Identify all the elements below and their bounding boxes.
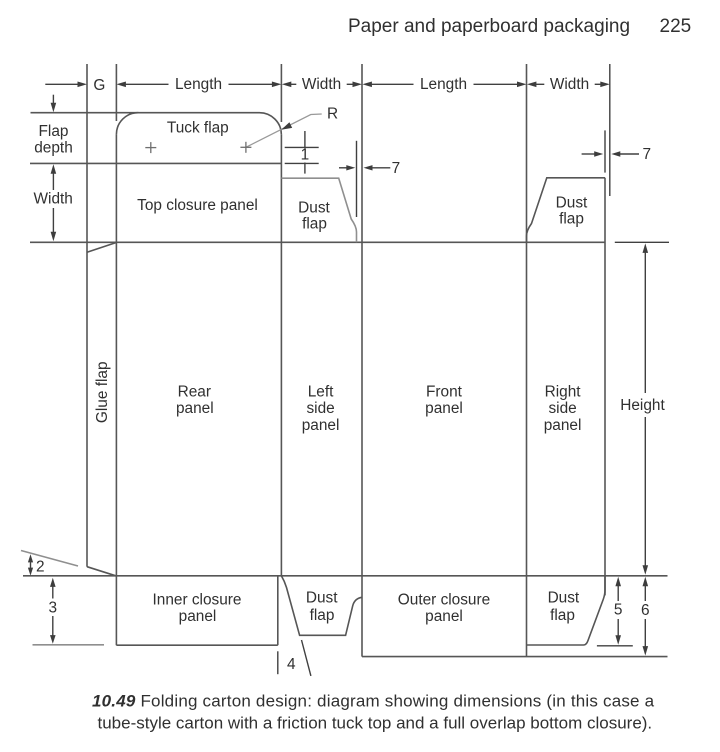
svg-text:Outer closure: Outer closure <box>398 592 490 609</box>
svg-text:Rear: Rear <box>178 384 211 401</box>
svg-text:Flap: Flap <box>39 123 69 140</box>
svg-text:side: side <box>306 400 334 417</box>
svg-text:panel: panel <box>425 400 463 417</box>
svg-text:Left: Left <box>308 384 334 401</box>
svg-text:Paper and paperboard packaging: Paper and paperboard packaging <box>348 16 630 37</box>
svg-text:flap: flap <box>302 215 327 232</box>
svg-text:Width: Width <box>302 76 341 93</box>
svg-text:depth: depth <box>34 140 73 157</box>
svg-text:Dust: Dust <box>306 590 338 607</box>
svg-text:panel: panel <box>302 417 340 434</box>
svg-text:panel: panel <box>179 608 217 625</box>
svg-text:Glue flap: Glue flap <box>94 361 111 423</box>
svg-text:1: 1 <box>301 146 310 163</box>
svg-text:Width: Width <box>34 191 73 208</box>
svg-text:Inner closure: Inner closure <box>153 592 242 609</box>
svg-text:7: 7 <box>392 160 401 177</box>
svg-text:Tuck flap: Tuck flap <box>167 120 229 137</box>
svg-text:Top closure panel: Top closure panel <box>137 197 258 214</box>
svg-text:4: 4 <box>287 656 296 673</box>
svg-text:panel: panel <box>425 608 463 625</box>
svg-text:panel: panel <box>176 400 214 417</box>
svg-text:Length: Length <box>420 76 467 93</box>
svg-text:G: G <box>93 77 105 94</box>
svg-text:panel: panel <box>544 417 582 434</box>
svg-text:Dust: Dust <box>298 199 330 216</box>
svg-text:Front: Front <box>426 384 463 401</box>
svg-text:Dust: Dust <box>556 195 588 212</box>
svg-text:225: 225 <box>660 16 692 37</box>
svg-text:Height: Height <box>620 397 665 414</box>
svg-text:flap: flap <box>310 607 335 624</box>
svg-text:5: 5 <box>614 601 623 618</box>
svg-text:side: side <box>548 400 576 417</box>
svg-text:flap: flap <box>550 607 575 624</box>
svg-text:tube-style carton with a frict: tube-style carton with a friction tuck t… <box>98 714 653 733</box>
svg-text:Dust: Dust <box>548 589 580 606</box>
svg-text:10.49 Folding carton design: d: 10.49 Folding carton design: diagram sho… <box>92 692 655 711</box>
svg-text:Right: Right <box>545 384 582 401</box>
svg-text:Width: Width <box>550 76 589 93</box>
svg-text:Length: Length <box>175 76 222 93</box>
svg-text:2: 2 <box>36 558 45 575</box>
svg-text:6: 6 <box>641 602 650 619</box>
svg-text:R: R <box>327 106 338 123</box>
svg-text:3: 3 <box>49 600 58 617</box>
svg-text:flap: flap <box>559 211 584 228</box>
svg-text:7: 7 <box>643 146 652 163</box>
